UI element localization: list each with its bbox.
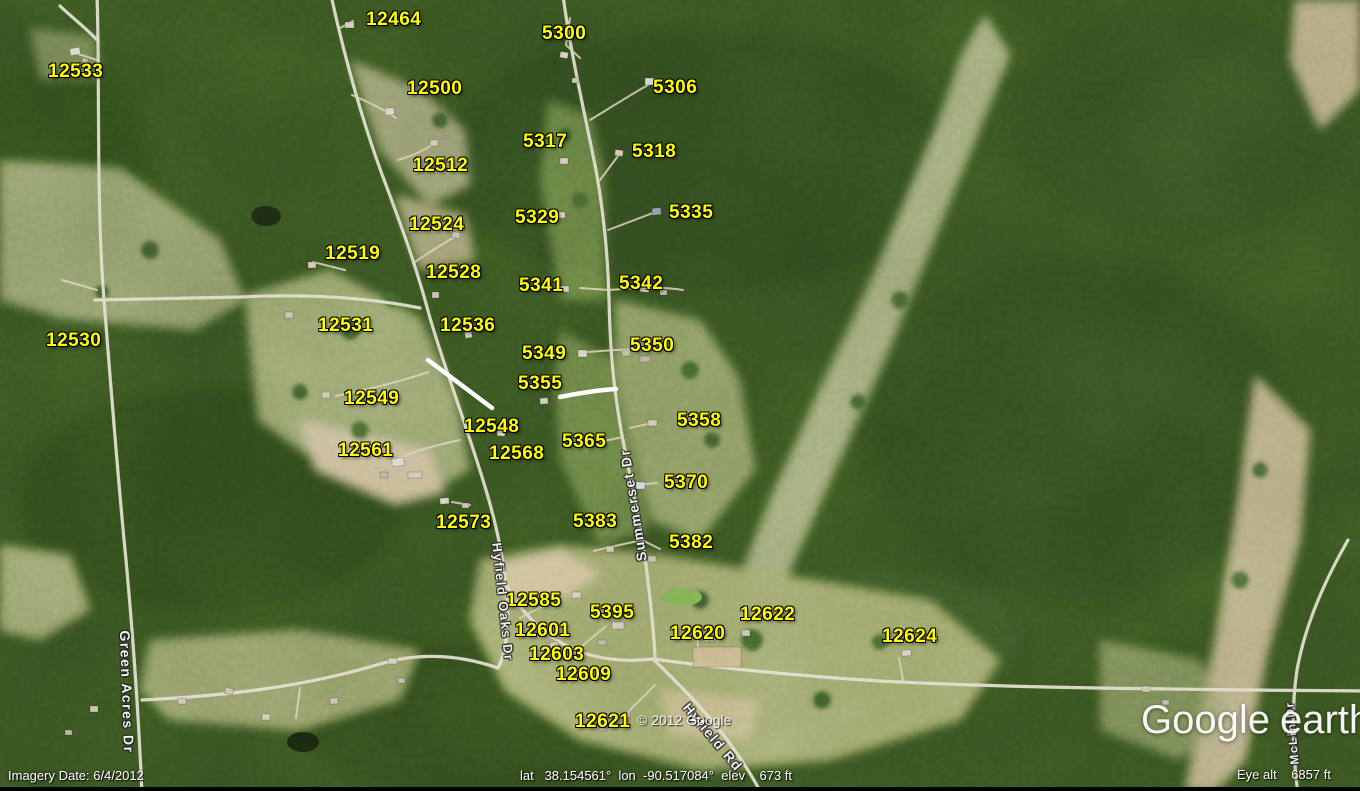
address-label-5306[interactable]: 5306 [653, 78, 697, 97]
address-label-12519[interactable]: 12519 [325, 244, 380, 263]
address-label-5300[interactable]: 5300 [542, 24, 586, 43]
address-label-5370[interactable]: 5370 [664, 473, 708, 492]
address-label-5329[interactable]: 5329 [515, 208, 559, 227]
google-earth-logo: Googleearth [1141, 700, 1360, 740]
address-label-12549[interactable]: 12549 [344, 389, 399, 408]
logo-earth-text: earth [1280, 698, 1360, 742]
address-label-5350[interactable]: 5350 [630, 336, 674, 355]
address-label-5317[interactable]: 5317 [523, 132, 567, 151]
address-label-12464[interactable]: 12464 [366, 10, 421, 29]
address-label-12512[interactable]: 12512 [413, 156, 468, 175]
address-label-12524[interactable]: 12524 [409, 215, 464, 234]
road-label-green-acres-dr: Green Acres Dr [118, 630, 136, 754]
address-label-12621[interactable]: 12621 [575, 712, 630, 731]
address-label-12536[interactable]: 12536 [440, 316, 495, 335]
address-label-5395[interactable]: 5395 [590, 603, 634, 622]
address-label-12603[interactable]: 12603 [529, 645, 584, 664]
address-label-12622[interactable]: 12622 [740, 605, 795, 624]
address-label-5383[interactable]: 5383 [573, 512, 617, 531]
address-label-12573[interactable]: 12573 [436, 513, 491, 532]
address-label-5365[interactable]: 5365 [562, 432, 606, 451]
address-label-12561[interactable]: 12561 [338, 441, 393, 460]
address-label-12531[interactable]: 12531 [318, 316, 373, 335]
address-label-5335[interactable]: 5335 [669, 203, 713, 222]
address-label-5318[interactable]: 5318 [632, 142, 676, 161]
address-label-12528[interactable]: 12528 [426, 263, 481, 282]
window-bottom-edge [0, 787, 1360, 791]
address-label-5382[interactable]: 5382 [669, 533, 713, 552]
logo-google-text: Google [1141, 698, 1270, 742]
address-label-12548[interactable]: 12548 [464, 417, 519, 436]
google-copyright: © 2012 Google [637, 712, 731, 728]
address-label-5358[interactable]: 5358 [677, 411, 721, 430]
labels-layer: 1246453001253312500530653175318125125329… [0, 0, 1360, 791]
pointer-coordinates: lat 38.154561° lon -90.517084° elev 673 … [520, 769, 792, 782]
address-label-12620[interactable]: 12620 [670, 624, 725, 643]
address-label-5349[interactable]: 5349 [522, 344, 566, 363]
address-label-12601[interactable]: 12601 [515, 621, 570, 640]
address-label-12533[interactable]: 12533 [48, 62, 103, 81]
address-label-5342[interactable]: 5342 [619, 274, 663, 293]
imagery-date: Imagery Date: 6/4/2012 [8, 769, 144, 782]
road-label-summerset-dr: Summerset Dr [617, 448, 649, 562]
address-label-12530[interactable]: 12530 [46, 331, 101, 350]
address-label-5355[interactable]: 5355 [518, 374, 562, 393]
address-label-12585[interactable]: 12585 [506, 591, 561, 610]
eye-altitude: Eye alt 6857 ft [1237, 768, 1331, 781]
address-label-12609[interactable]: 12609 [556, 665, 611, 684]
address-label-12568[interactable]: 12568 [489, 444, 544, 463]
address-label-5341[interactable]: 5341 [519, 276, 563, 295]
google-earth-viewport: 1246453001253312500530653175318125125329… [0, 0, 1360, 791]
address-label-12500[interactable]: 12500 [407, 79, 462, 98]
address-label-12624[interactable]: 12624 [882, 627, 937, 646]
